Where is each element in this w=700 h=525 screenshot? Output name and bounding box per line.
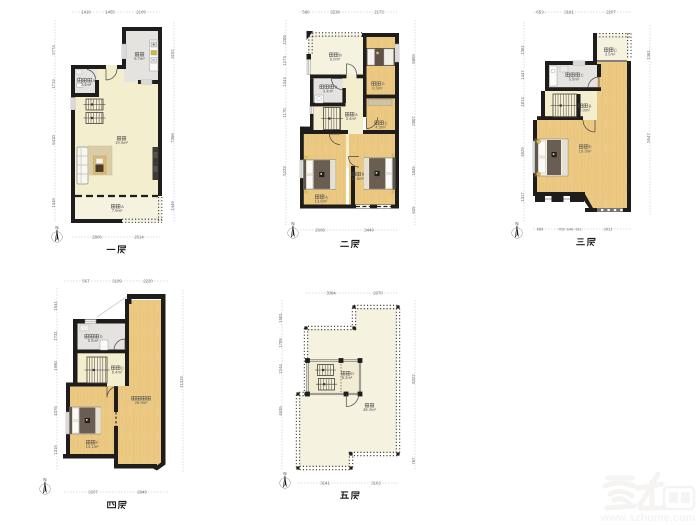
svg-text:5.5m²: 5.5m²: [88, 338, 99, 343]
svg-text:N: N: [43, 477, 46, 482]
svg-text:3192: 3192: [170, 49, 175, 59]
svg-text:28.9m²: 28.9m²: [135, 400, 148, 405]
svg-text:1447: 1447: [520, 70, 525, 80]
svg-text:4.0m²: 4.0m²: [579, 108, 590, 113]
svg-text:N: N: [55, 225, 58, 230]
svg-text:4.3m²: 4.3m²: [375, 125, 386, 130]
svg-text:1317: 1317: [520, 192, 525, 202]
svg-text:8.5m²: 8.5m²: [372, 85, 383, 90]
svg-text:11319: 11319: [179, 376, 184, 388]
svg-text:D: D: [100, 334, 103, 339]
svg-text:2608: 2608: [315, 228, 325, 233]
svg-text:19.5m²: 19.5m²: [115, 140, 128, 145]
svg-text:B: B: [335, 84, 338, 89]
svg-text:1315: 1315: [53, 445, 58, 455]
svg-text:3.4m²: 3.4m²: [323, 89, 334, 94]
svg-text:46.2m²: 46.2m²: [363, 407, 376, 412]
svg-text:1845: 1845: [411, 166, 416, 176]
svg-text:2614: 2614: [134, 235, 144, 240]
svg-text:2173: 2173: [374, 10, 384, 15]
svg-text:9547: 9547: [646, 133, 651, 143]
svg-text:2207: 2207: [606, 10, 616, 15]
svg-text:3163: 3163: [371, 481, 381, 486]
svg-text:2807: 2807: [411, 116, 416, 126]
svg-text:6.2m²: 6.2m²: [342, 375, 353, 380]
svg-text:8322: 8322: [411, 374, 416, 384]
svg-text:19.3m²: 19.3m²: [579, 148, 592, 153]
svg-text:3207: 3207: [88, 490, 98, 495]
svg-text:4635: 4635: [278, 406, 283, 416]
svg-text:6.7m²: 6.7m²: [134, 56, 145, 61]
svg-text:767: 767: [411, 457, 416, 465]
svg-text:6410: 6410: [51, 135, 56, 145]
svg-text:1416: 1416: [81, 10, 91, 15]
svg-text:14.1m²: 14.1m²: [86, 444, 99, 449]
svg-text:2913: 2913: [604, 227, 613, 232]
svg-text:A: A: [93, 78, 96, 83]
svg-text:5899: 5899: [411, 54, 416, 64]
svg-text:1501: 1501: [278, 313, 283, 323]
svg-text:1206: 1206: [282, 35, 287, 45]
svg-text:2670: 2670: [373, 291, 383, 296]
svg-text:1990: 1990: [53, 361, 58, 371]
svg-text:1170: 1170: [282, 108, 287, 118]
svg-text:609: 609: [537, 227, 544, 232]
svg-text:1714: 1714: [51, 79, 56, 89]
svg-text:13.6m²: 13.6m²: [315, 199, 328, 204]
svg-text:N: N: [291, 221, 294, 226]
svg-text:1361: 1361: [646, 50, 651, 60]
svg-text:3449: 3449: [364, 228, 374, 233]
svg-text:N: N: [283, 471, 286, 476]
svg-text:1361: 1361: [520, 45, 525, 55]
svg-text:1273: 1273: [282, 56, 287, 66]
svg-text:1344: 1344: [282, 77, 287, 87]
svg-text:2849: 2849: [137, 490, 147, 495]
svg-text:7.9m²: 7.9m²: [112, 208, 123, 213]
svg-text:4376: 4376: [53, 406, 58, 416]
svg-text:3.5m²: 3.5m²: [605, 52, 616, 57]
svg-text:2230: 2230: [143, 279, 153, 284]
svg-text:1709: 1709: [278, 338, 283, 348]
svg-text:3199: 3199: [112, 279, 122, 284]
svg-text:2244: 2244: [278, 364, 283, 374]
svg-text:3238: 3238: [330, 10, 340, 15]
svg-text:6.4m²: 6.4m²: [112, 370, 123, 375]
svg-text:-653-: -653-: [535, 10, 546, 15]
svg-text:4529: 4529: [520, 147, 525, 157]
svg-text:2.4m²: 2.4m²: [81, 82, 92, 87]
svg-text:N: N: [515, 221, 518, 226]
svg-text:3141: 3141: [320, 481, 330, 486]
svg-text:567: 567: [82, 279, 90, 284]
svg-text:1449: 1449: [51, 198, 56, 208]
svg-text:www.szhome.com: www.szhome.com: [600, 512, 696, 524]
svg-text:3.4m²: 3.4m²: [346, 116, 357, 121]
svg-text:3181: 3181: [564, 10, 574, 15]
svg-text:5233: 5233: [282, 166, 287, 176]
svg-text:8.0m²: 8.0m²: [330, 57, 341, 62]
svg-text:1814: 1814: [520, 97, 525, 107]
svg-text:C: C: [581, 72, 584, 77]
svg-text:12.3m²: 12.3m²: [351, 176, 364, 181]
svg-text:586: 586: [302, 10, 310, 15]
svg-text:5.9m²: 5.9m²: [569, 77, 580, 82]
svg-text:2806: 2806: [92, 235, 102, 240]
svg-text:1449: 1449: [170, 201, 175, 211]
svg-text:3084: 3084: [326, 291, 336, 296]
svg-text:1541: 1541: [53, 301, 58, 311]
svg-text:2109: 2109: [136, 10, 146, 15]
svg-text:625: 625: [411, 206, 416, 214]
svg-text:1455: 1455: [105, 10, 115, 15]
svg-text:2774: 2774: [51, 45, 56, 55]
svg-text:7366: 7366: [170, 133, 175, 143]
svg-text:-702--546--911-: -702--546--911-: [557, 228, 583, 232]
svg-text:1731: 1731: [53, 331, 58, 341]
